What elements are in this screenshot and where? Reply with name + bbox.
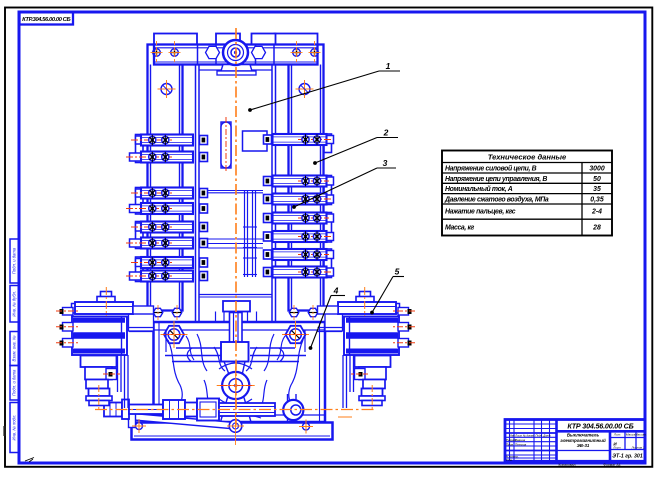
svg-text:Напряжение цепи управления, В: Напряжение цепи управления, В bbox=[445, 176, 547, 183]
svg-text:Петров: Петров bbox=[515, 442, 527, 446]
svg-text:Напряжение силовой цепи, В: Напряжение силовой цепи, В bbox=[445, 165, 537, 173]
svg-text:Подп. и дата: Подп. и дата bbox=[12, 369, 17, 396]
svg-text:КТР.304.56.00.00 СБ: КТР.304.56.00.00 СБ bbox=[22, 17, 70, 23]
svg-text:КТР 304.56.00.00 СБ: КТР 304.56.00.00 СБ bbox=[567, 422, 633, 431]
svg-text:Взам. инв. №: Взам. инв. № bbox=[12, 335, 17, 361]
svg-text:0,35: 0,35 bbox=[590, 196, 604, 203]
svg-text:3: 3 bbox=[383, 158, 388, 168]
svg-text:Номинальный ток, А: Номинальный ток, А bbox=[445, 185, 513, 193]
svg-text:Лит.: Лит. bbox=[613, 432, 621, 436]
svg-text:Масса, кг: Масса, кг bbox=[445, 225, 475, 232]
svg-text:Формат А4: Формат А4 bbox=[603, 463, 620, 467]
svg-text:Подп. и дата: Подп. и дата bbox=[12, 247, 17, 274]
svg-text:35: 35 bbox=[593, 186, 601, 193]
svg-text:Масшт.: Масшт. bbox=[635, 432, 647, 436]
svg-text:Нажатие пальцев, кгс: Нажатие пальцев, кгс bbox=[445, 209, 516, 216]
svg-text:2-4: 2-4 bbox=[591, 209, 602, 216]
svg-text:28: 28 bbox=[592, 225, 601, 232]
svg-text:Лист: Лист bbox=[612, 446, 621, 450]
svg-text:Утв.: Утв. bbox=[506, 458, 513, 462]
svg-text:Листов 1: Листов 1 bbox=[631, 446, 645, 450]
svg-text:Инв. № дубл.: Инв. № дубл. bbox=[12, 291, 17, 317]
svg-text:Изм Лист № докум. Подп. Да: Изм Лист № докум. Подп. Дата bbox=[510, 434, 551, 438]
svg-text:Давление сжатого воздуха, МПа: Давление сжатого воздуха, МПа bbox=[444, 195, 549, 203]
svg-text:Копировал: Копировал bbox=[559, 463, 576, 467]
svg-text:Пров.: Пров. bbox=[506, 442, 514, 446]
svg-text:Техническое данные: Техническое данные bbox=[488, 152, 567, 161]
svg-text:3000: 3000 bbox=[589, 166, 604, 173]
svg-text:50: 50 bbox=[593, 176, 601, 183]
svg-text:4: 4 bbox=[333, 286, 339, 296]
svg-text:ЭВ-31: ЭВ-31 bbox=[577, 443, 590, 448]
svg-text:ЭТ-1 гр. 301: ЭТ-1 гр. 301 bbox=[612, 454, 643, 460]
svg-text:1: 1 bbox=[386, 61, 391, 71]
svg-text:5: 5 bbox=[395, 267, 400, 277]
svg-text:Масса: Масса bbox=[626, 432, 635, 436]
svg-text:Инв. № подл.: Инв. № подл. bbox=[12, 415, 17, 441]
svg-text:2: 2 bbox=[383, 128, 389, 138]
